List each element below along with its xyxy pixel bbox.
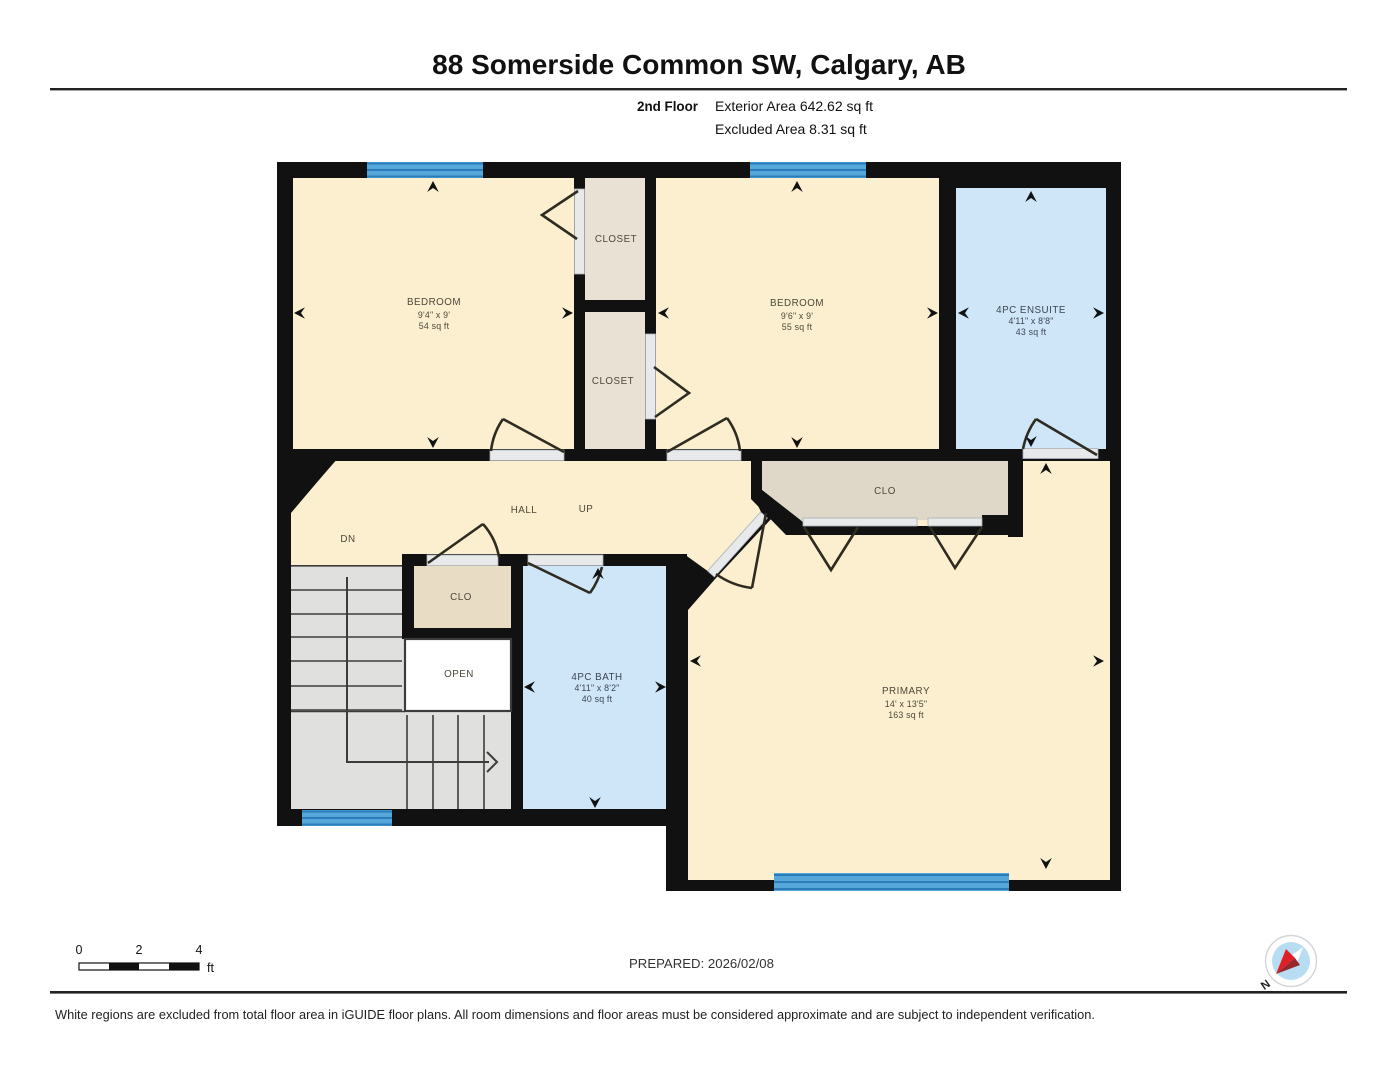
svg-text:14' x 13'5": 14' x 13'5" <box>885 699 927 709</box>
svg-text:CLO: CLO <box>450 592 472 603</box>
svg-text:White regions are excluded fro: White regions are excluded from total fl… <box>55 1007 1095 1022</box>
svg-text:CLO: CLO <box>874 486 896 497</box>
svg-text:PREPARED: 2026/02/08: PREPARED: 2026/02/08 <box>629 956 774 971</box>
svg-text:Excluded Area 8.31 sq ft: Excluded Area 8.31 sq ft <box>715 121 867 137</box>
svg-text:40 sq ft: 40 sq ft <box>582 694 613 704</box>
svg-text:4PC BATH: 4PC BATH <box>571 672 622 683</box>
svg-text:54 sq ft: 54 sq ft <box>419 321 450 331</box>
svg-text:CLOSET: CLOSET <box>592 376 634 387</box>
svg-text:9'6" x 9': 9'6" x 9' <box>781 311 813 321</box>
svg-text:BEDROOM: BEDROOM <box>770 298 824 309</box>
svg-text:BEDROOM: BEDROOM <box>407 297 461 308</box>
svg-text:4PC ENSUITE: 4PC ENSUITE <box>996 305 1066 316</box>
svg-text:9'4" x 9': 9'4" x 9' <box>418 310 450 320</box>
svg-text:0: 0 <box>76 943 83 957</box>
svg-text:PRIMARY: PRIMARY <box>882 686 930 697</box>
svg-text:4'11" x 8'8": 4'11" x 8'8" <box>1008 316 1053 326</box>
svg-text:UP: UP <box>579 504 594 515</box>
svg-text:CLOSET: CLOSET <box>595 234 637 245</box>
svg-text:163 sq ft: 163 sq ft <box>888 710 924 720</box>
svg-text:4: 4 <box>196 943 203 957</box>
svg-text:HALL: HALL <box>511 505 538 516</box>
svg-text:Exterior Area 642.62 sq ft: Exterior Area 642.62 sq ft <box>715 98 873 114</box>
svg-text:2: 2 <box>136 943 143 957</box>
svg-text:55 sq ft: 55 sq ft <box>782 322 813 332</box>
svg-text:ft: ft <box>207 961 214 975</box>
svg-text:88 Somerside Common SW, Calgar: 88 Somerside Common SW, Calgary, AB <box>432 49 966 80</box>
svg-text:43 sq ft: 43 sq ft <box>1016 327 1047 337</box>
svg-text:OPEN: OPEN <box>444 669 474 680</box>
svg-text:4'11" x 8'2": 4'11" x 8'2" <box>574 683 619 693</box>
svg-text:2nd Floor: 2nd Floor <box>637 99 699 114</box>
svg-text:DN: DN <box>340 534 355 545</box>
